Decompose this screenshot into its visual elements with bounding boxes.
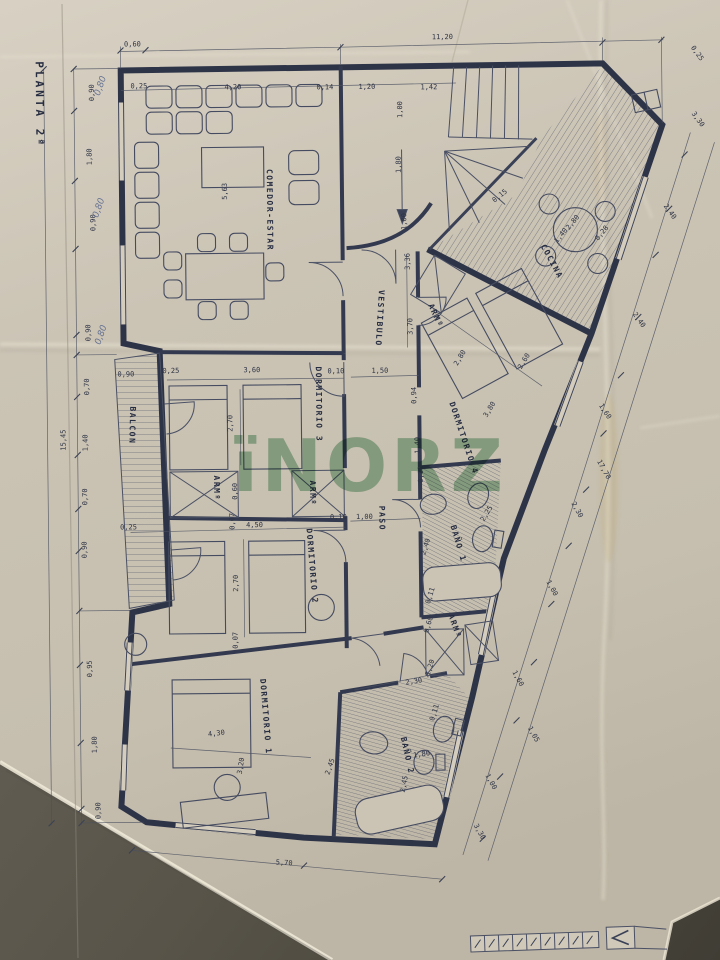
room-label-dormitorio-3: DORMITORIO 3	[314, 366, 324, 442]
photo-of-floor-plan: PLANTA 2ªCOMEDOR-ESTARCOCINAVESTIBULOBAL…	[0, 0, 720, 960]
dimension-label: 0,10	[330, 513, 347, 521]
dimension-label: 2,70	[226, 415, 234, 432]
dimension-label: 0,70	[81, 488, 89, 505]
dimension-label: 1,50	[371, 367, 388, 375]
dimension-label: 0,25	[120, 523, 137, 531]
plan-title: PLANTA 2ª	[33, 61, 47, 148]
dimension-label: 1,80	[395, 156, 403, 173]
dimension-label: 0,90	[84, 324, 92, 341]
room-label-paso: PASO	[377, 506, 386, 531]
dimension-label: 3,36	[404, 253, 412, 270]
dimension-label: 0,07	[232, 632, 240, 649]
dimension-label: 0,90	[117, 370, 134, 378]
dimension-label: 1,40	[82, 434, 90, 451]
dimension-label: 0,11	[417, 466, 425, 483]
dimension-label: 0,90	[94, 802, 102, 819]
dimension-label: 0,14	[316, 83, 333, 91]
dimension-label: 1,80	[86, 148, 94, 165]
dimension-label: 1,42	[420, 83, 437, 91]
dimension-label: 0,25	[162, 367, 179, 375]
dimension-label: 0,60	[124, 40, 141, 48]
closet-label-2: ARMº	[308, 480, 317, 505]
dimension-label: 0,10	[327, 367, 344, 375]
dimension-label: 0,07	[228, 513, 236, 530]
dimension-label: 2,70	[232, 575, 240, 592]
dimension-label: 3,70	[406, 318, 414, 335]
dimension-label: 3,60	[243, 366, 260, 374]
closet-label-1: ARMº	[212, 475, 221, 500]
dimension-label: 1,00	[396, 101, 404, 118]
dimension-label: 1,40	[414, 437, 422, 454]
floor-plan-photo-svg: PLANTA 2ªCOMEDOR-ESTARCOCINAVESTIBULOBAL…	[0, 0, 720, 960]
room-label-balcon: BALCON	[127, 406, 137, 444]
dimension-label: 0,60	[231, 483, 239, 500]
dimension-label: 5,70	[275, 858, 292, 867]
dimension-label: 5,63	[221, 183, 229, 200]
dimension-label: 1,00	[356, 513, 373, 521]
dimension-label: 11,20	[432, 33, 453, 41]
dimension-label: 4,50	[246, 521, 263, 529]
dimension-label: 0,70	[83, 378, 91, 395]
dimension-label: 1,80	[91, 736, 99, 753]
dimension-label: 15,45	[59, 430, 67, 451]
dimension-label: 1,20	[358, 83, 375, 91]
dimension-label: 0,25	[130, 82, 147, 90]
dimension-label: 0,95	[86, 660, 94, 677]
room-label-comedor-estar: COMEDOR-ESTAR	[265, 169, 275, 251]
dimension-label: 1,00	[400, 213, 408, 230]
dimension-label: 4,20	[224, 83, 241, 91]
dimension-label: 0,94	[410, 387, 418, 404]
dimension-label: 0,90	[81, 541, 89, 558]
